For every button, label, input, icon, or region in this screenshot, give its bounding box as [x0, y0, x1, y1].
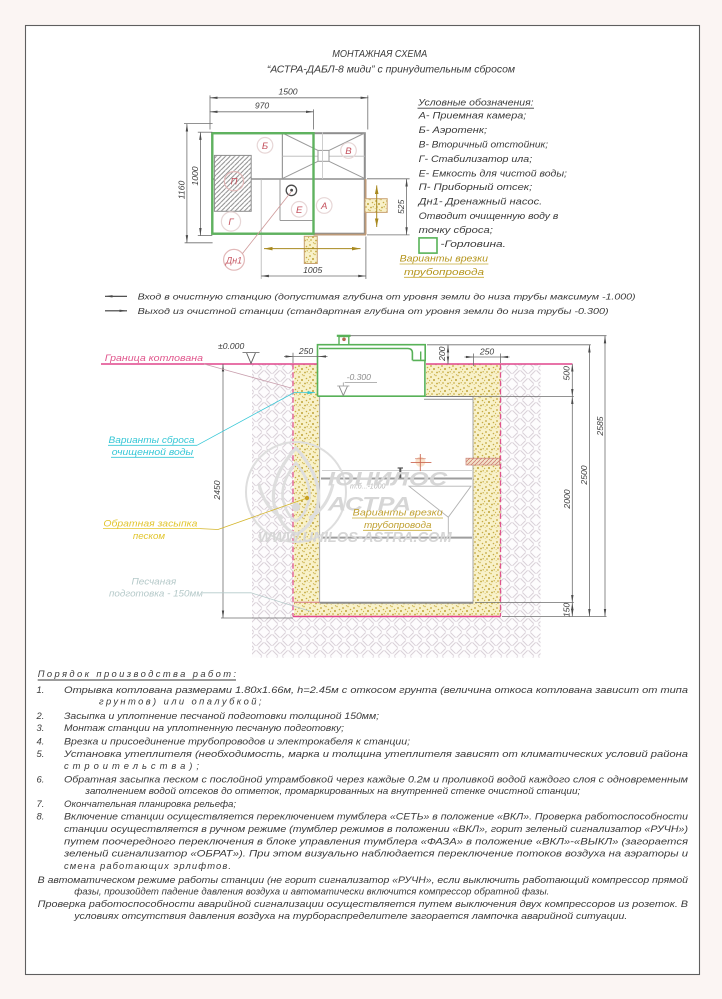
svg-text:500: 500 [562, 366, 572, 381]
svg-text:Монтаж станции на уплотненную: Монтаж станции на уплотненную песчаную п… [64, 722, 344, 733]
svg-text:песком: песком [133, 531, 165, 541]
svg-text:Установка утеплителя (необходи: Установка утеплителя (необходимость, мар… [63, 748, 688, 759]
svg-text:1500: 1500 [278, 87, 297, 97]
svg-text:фазы, произойдет падение давле: фазы, произойдет падение давления воздух… [74, 885, 549, 896]
svg-text:Б: Б [262, 141, 268, 152]
svg-text:МОНТАЖНАЯ СХЕМА: МОНТАЖНАЯ СХЕМА [332, 49, 427, 60]
svg-text:Окончательная планировка релье: Окончательная планировка рельефа; [64, 798, 236, 809]
svg-text:2585: 2585 [595, 416, 605, 436]
svg-text:7.: 7. [37, 798, 45, 809]
svg-text:В автоматическом режиме работы: В автоматическом режиме работы станции (… [38, 874, 689, 885]
svg-text:подготовка - 150мм: подготовка - 150мм [109, 589, 203, 599]
svg-text:А: А [320, 201, 327, 212]
svg-text:Засыпка и уплотнение песчаной: Засыпка и уплотнение песчаной подготовки… [64, 710, 379, 721]
svg-text:грунтов) или опалубкой;: грунтов) или опалубкой; [99, 696, 262, 707]
svg-text:Отводит очищенную воду в: Отводит очищенную воду в [419, 210, 559, 221]
svg-text:Г: Г [228, 217, 234, 228]
svg-text:Отрывка котлована размерами 1.: Отрывка котлована размерами 1.80х1.66м, … [64, 684, 688, 695]
svg-text:±0.000: ±0.000 [218, 341, 244, 351]
svg-text:Дн1- Дренажный насос.: Дн1- Дренажный насос. [418, 196, 543, 207]
svg-text:Б- Аэротенк;: Б- Аэротенк; [419, 124, 488, 135]
svg-text:WWW.UNILOS-ASTRA.COM: WWW.UNILOS-ASTRA.COM [258, 529, 452, 546]
svg-text:ЮНИЛОС: ЮНИЛОС [328, 470, 448, 491]
svg-text:В- Вторичный отстойник;: В- Вторичный отстойник; [419, 138, 549, 149]
svg-text:Выход из очистной станции (ста: Выход из очистной станции (стандартная г… [138, 306, 609, 316]
svg-text:Е- Емкость для чистой воды;: Е- Емкость для чистой воды; [419, 167, 568, 178]
svg-text:970: 970 [255, 101, 270, 111]
svg-text:Дн1: Дн1 [225, 255, 242, 265]
svg-text:Проверка работоспособности ава: Проверка работоспособности аварийной сиг… [38, 898, 688, 909]
svg-text:2450: 2450 [212, 480, 222, 500]
svg-text:Варианты врезки: Варианты врезки [353, 508, 443, 518]
svg-text:5.: 5. [37, 748, 45, 759]
svg-text:2000: 2000 [562, 489, 572, 509]
svg-text:Обратная засыпка: Обратная засыпка [103, 519, 197, 529]
svg-text:Врезка и присоединение трубопр: Врезка и присоединение трубопроводов и э… [64, 735, 410, 746]
svg-text:станции осуществляется в ручно: станции осуществляется в ручном режиме (… [64, 823, 688, 834]
svg-text:6.: 6. [37, 773, 45, 784]
svg-text:Варианты врезки: Варианты врезки [400, 254, 489, 264]
svg-text:4.: 4. [37, 735, 45, 746]
svg-text:2500: 2500 [579, 465, 589, 485]
svg-text:8.: 8. [37, 811, 45, 822]
svg-text:1.: 1. [37, 684, 45, 695]
svg-text:П: П [231, 177, 238, 188]
svg-text:точку сброса;: точку сброса; [419, 224, 494, 235]
svg-text:Граница котлована: Граница котлована [105, 353, 203, 363]
svg-text:Включение станции осуществляет: Включение станции осуществляется переклю… [64, 811, 689, 822]
svg-text:1005: 1005 [303, 265, 322, 275]
svg-text:1000: 1000 [190, 166, 200, 185]
svg-text:П- Приборный отсек;: П- Приборный отсек; [419, 181, 533, 192]
svg-text:-0.300: -0.300 [347, 372, 372, 382]
svg-text:Песчаная: Песчаная [132, 577, 177, 587]
svg-text:смена работающих эрлифтов.: смена работающих эрлифтов. [64, 860, 231, 871]
svg-text:А- Приемная камера;: А- Приемная камера; [418, 110, 527, 121]
svg-text:250: 250 [479, 347, 495, 357]
svg-text:Варианты сброса: Варианты сброса [109, 435, 195, 445]
svg-text:трубопровода: трубопровода [364, 520, 432, 530]
svg-text:трубопровода: трубопровода [404, 267, 484, 277]
svg-text:150: 150 [562, 603, 572, 618]
svg-text:250: 250 [298, 346, 314, 356]
svg-text:условиях отсутствия давления: условиях отсутствия давления воздуха на … [73, 910, 627, 921]
svg-text:зеленый сигнализатор «ОБРАТ»).: зеленый сигнализатор «ОБРАТ»). При этом … [63, 848, 689, 859]
svg-text:525: 525 [396, 199, 406, 214]
svg-text:очищенной воды: очищенной воды [112, 447, 194, 457]
svg-text:Е: Е [296, 205, 303, 216]
svg-text:Обратная засыпка песком с посл: Обратная засыпка песком с послойной утра… [64, 773, 689, 784]
svg-text:Г- Стабилизатор ила;: Г- Стабилизатор ила; [419, 153, 533, 164]
svg-text:заполнением водой отсеков до о: заполнением водой отсеков до отметок, пр… [84, 785, 580, 796]
svg-text:путем поочередного переключени: путем поочередного переключения в блоке … [64, 835, 688, 846]
svg-text:Условные обозначения:: Условные обозначения: [417, 97, 534, 108]
svg-text:1160: 1160 [177, 181, 187, 200]
svg-text:Вход в очистную станцию (допус: Вход в очистную станцию (допустимая глуб… [138, 292, 636, 302]
svg-text:200: 200 [437, 346, 447, 362]
svg-text:3.: 3. [37, 722, 45, 733]
svg-text:2.: 2. [36, 710, 45, 721]
svg-text:-Горловина.: -Горловина. [441, 238, 507, 249]
svg-text:В: В [345, 146, 352, 157]
svg-text:“АСТРА-ДАБЛ-8 миди” с принудит: “АСТРА-ДАБЛ-8 миди” с принудительным сбр… [267, 65, 515, 76]
